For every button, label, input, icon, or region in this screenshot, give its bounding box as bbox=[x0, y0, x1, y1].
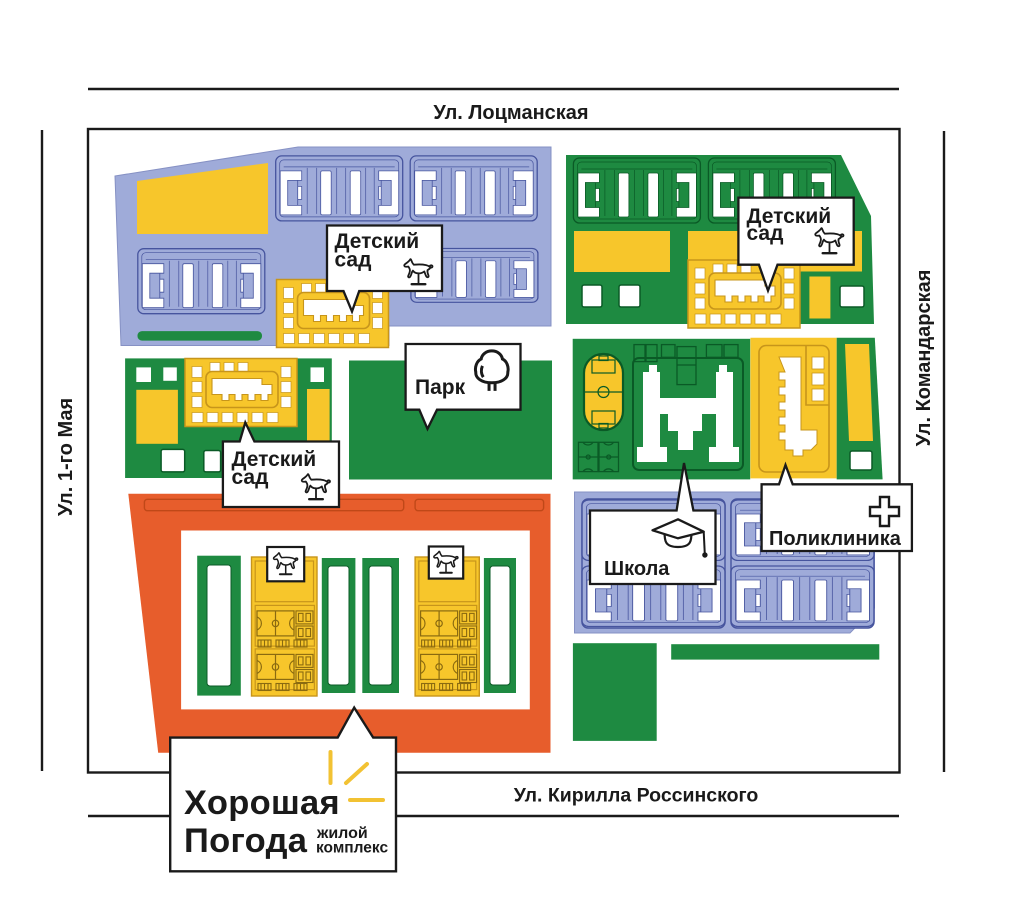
svg-text:Ул. Командарская: Ул. Командарская bbox=[913, 270, 935, 447]
svg-text:Погода: Погода bbox=[184, 822, 308, 860]
svg-text:сад: сад bbox=[747, 222, 784, 245]
svg-text:комплекс: комплекс bbox=[316, 840, 388, 857]
svg-text:Ул. 1-го Мая: Ул. 1-го Мая bbox=[55, 398, 77, 516]
svg-text:Ул. Лоцманская: Ул. Лоцманская bbox=[433, 102, 588, 124]
svg-text:сад: сад bbox=[232, 466, 269, 489]
svg-text:Парк: Парк bbox=[415, 376, 466, 399]
svg-text:сад: сад bbox=[335, 249, 372, 272]
svg-text:Ул. Кирилла Россинского: Ул. Кирилла Россинского bbox=[514, 785, 759, 807]
svg-text:Хорошая: Хорошая bbox=[184, 784, 340, 822]
svg-text:Поликлиника: Поликлиника bbox=[769, 528, 902, 550]
svg-text:Школа: Школа bbox=[604, 558, 670, 580]
